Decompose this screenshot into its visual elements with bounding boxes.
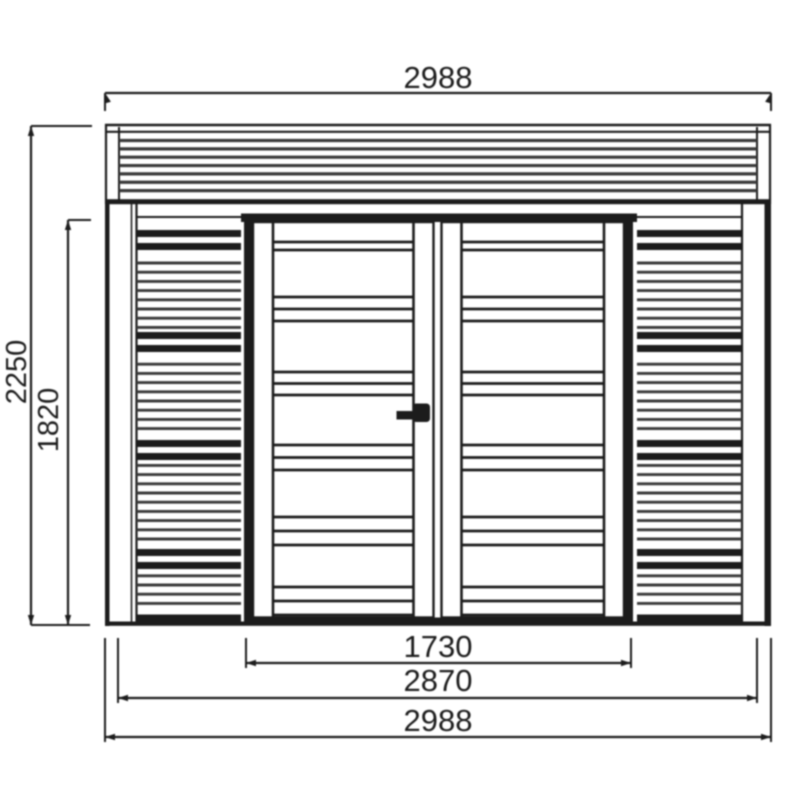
svg-text:1820: 1820	[33, 388, 65, 453]
svg-text:2870: 2870	[404, 663, 473, 698]
svg-text:2988: 2988	[404, 703, 473, 738]
svg-text:2988: 2988	[404, 60, 473, 95]
svg-text:1730: 1730	[404, 629, 473, 664]
svg-text:2250: 2250	[1, 340, 33, 405]
